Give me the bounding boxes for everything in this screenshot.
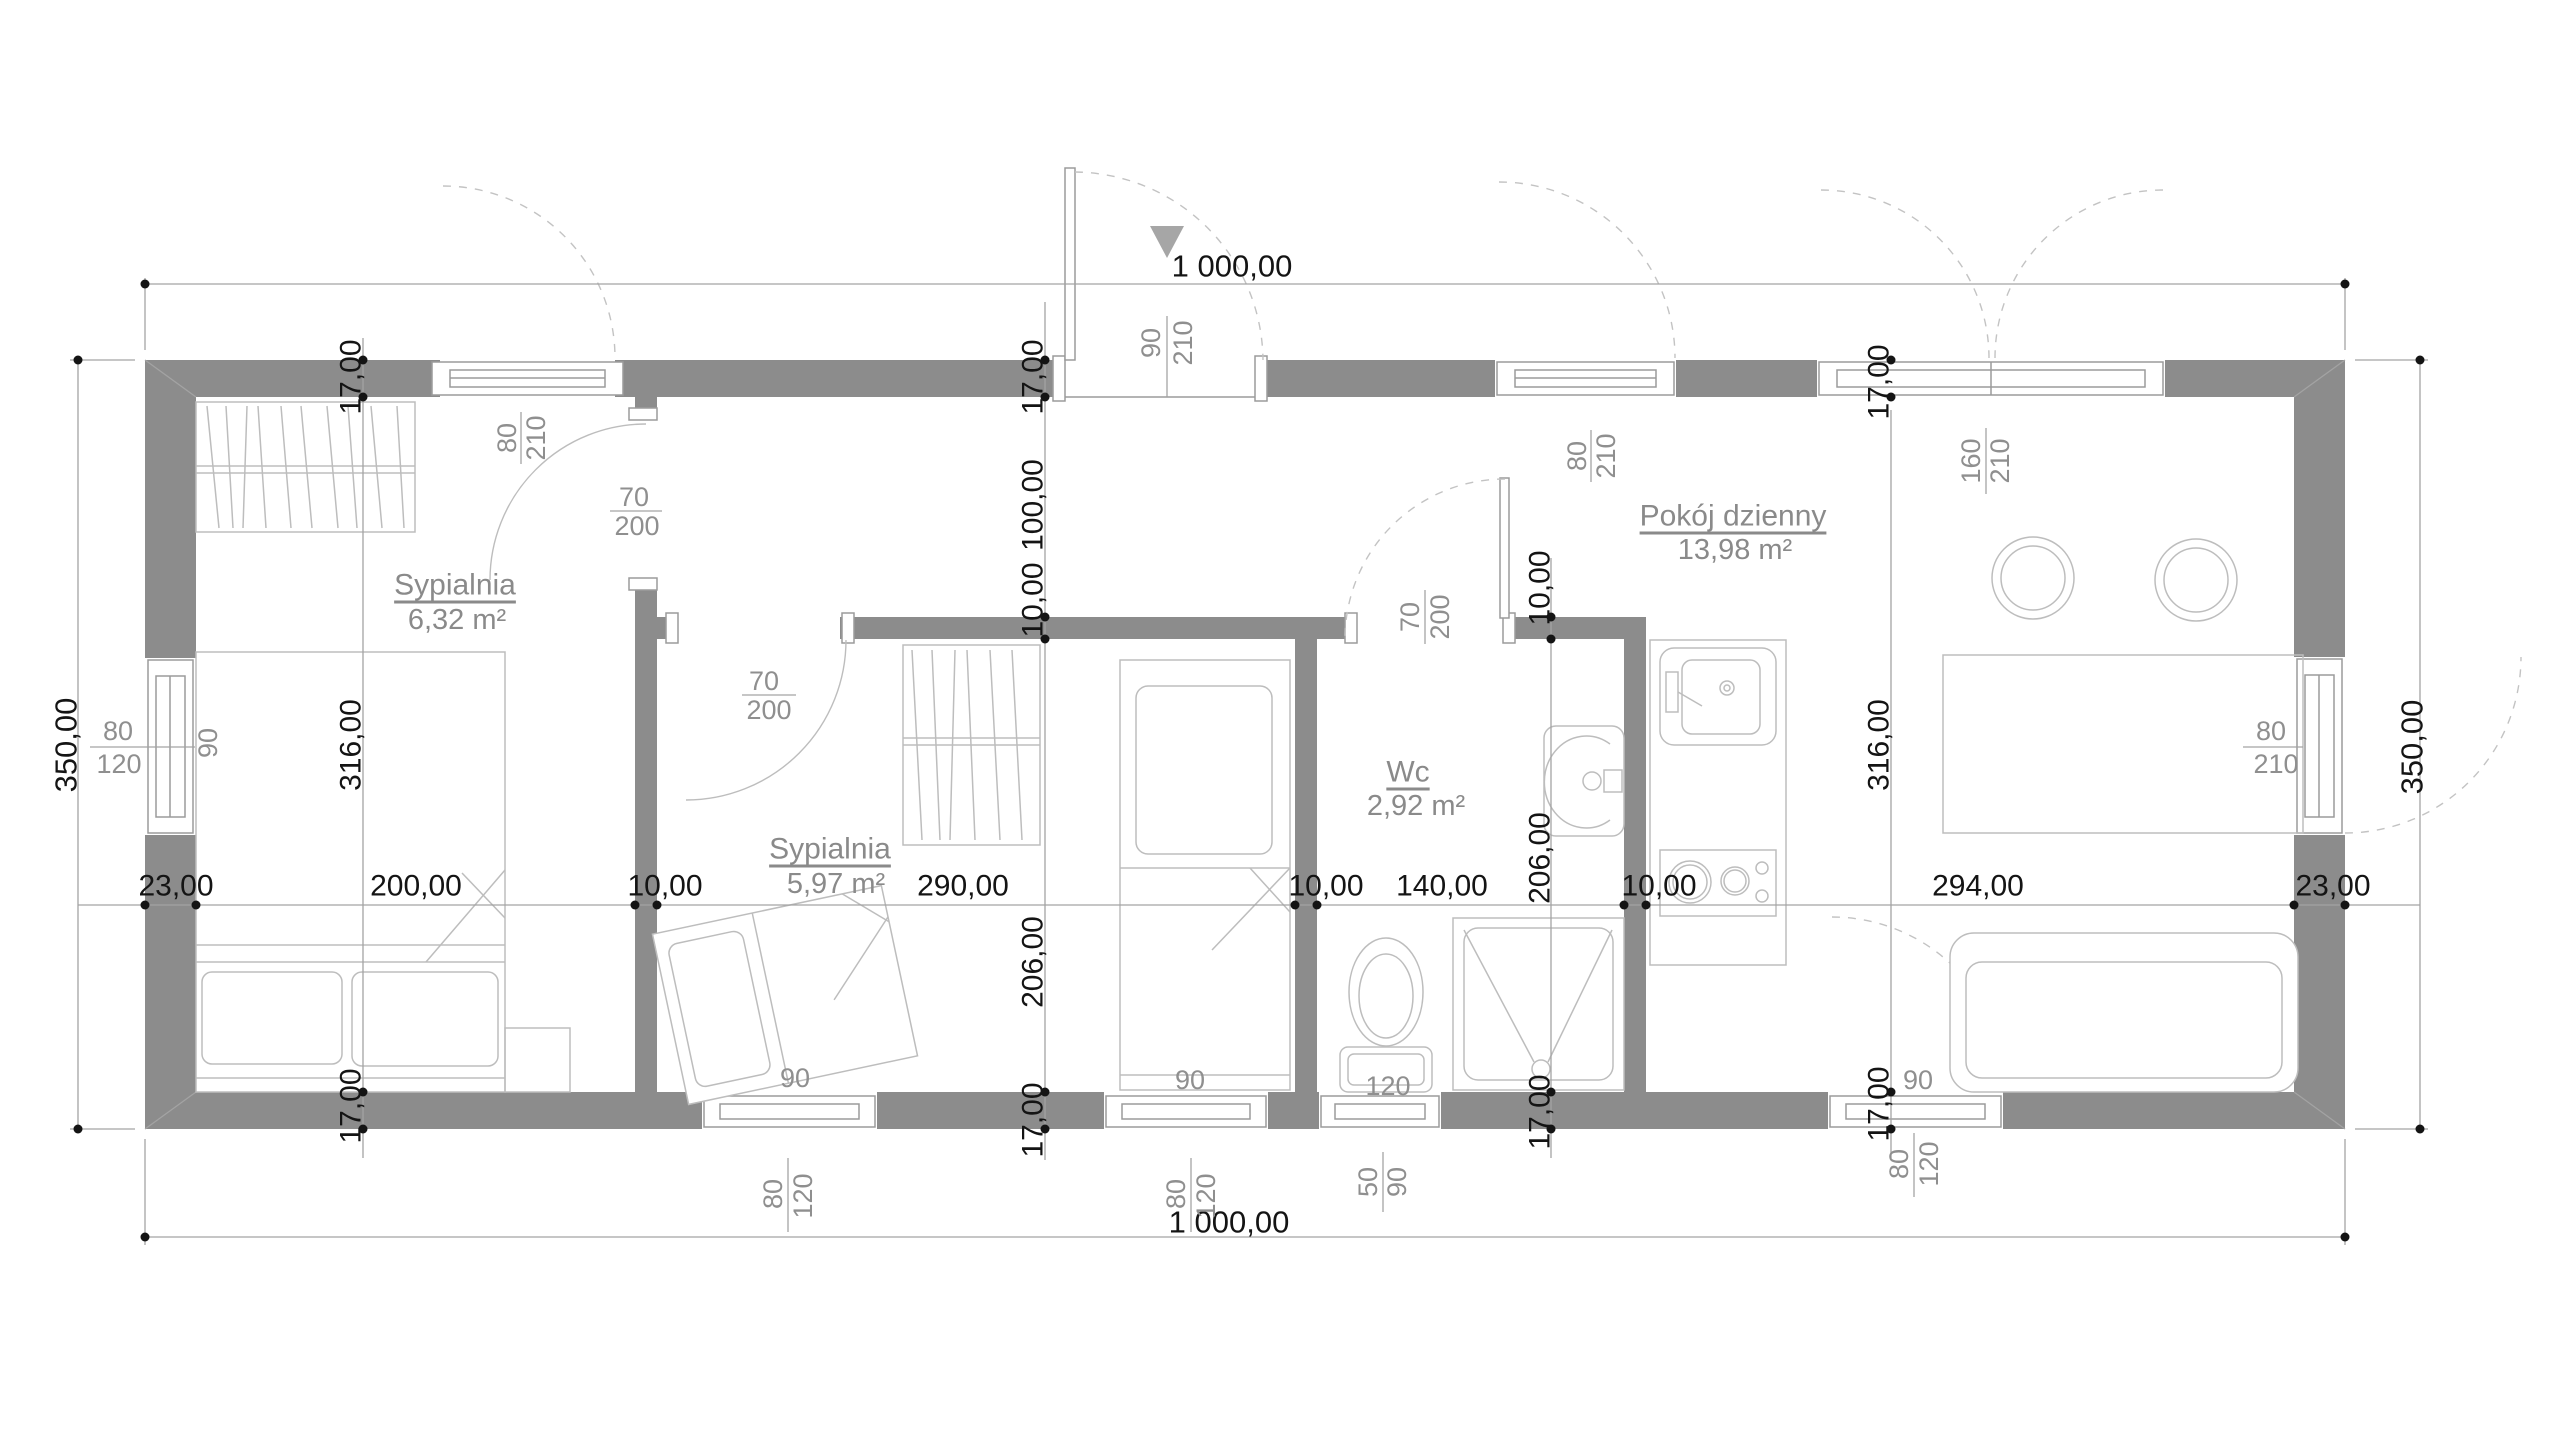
room-bedroom2-name: Sypialnia (769, 833, 891, 866)
label-w1-height: 210 (521, 415, 551, 460)
nightstand-bedroom1 (505, 1028, 570, 1092)
dim-total-right: 350,00 (2395, 700, 2430, 795)
label-w5-height: 120 (788, 1173, 818, 1218)
dim-wc-0: 10,00 (1524, 550, 1557, 625)
entrance-door-leaf (1065, 168, 1075, 360)
dim-wc-2: 17,00 (1524, 1074, 1557, 1149)
window-top-double-swing-left (1821, 190, 1989, 358)
living-chairs (1992, 537, 2237, 621)
dim-total-left: 350,00 (49, 698, 84, 793)
label-w3-width: 80 (1562, 441, 1592, 471)
toilet (1340, 938, 1432, 1092)
label-d1-height: 200 (614, 511, 659, 541)
room-wc-label: Wc 2,92 m² (1367, 756, 1466, 823)
dim-left-1: 316,00 (335, 699, 368, 791)
window-top-living-swing (1499, 182, 1675, 358)
entrance-door-jambs (1053, 356, 1267, 401)
living-table (1943, 655, 2303, 833)
dim-h-4: 10,00 (1288, 870, 1363, 903)
room-living-name: Pokój dzienny (1640, 500, 1827, 533)
label-d2-height: 200 (746, 695, 791, 725)
room-bedroom1-area: 6,32 m² (408, 604, 507, 636)
room-bedroom2-label: Sypialnia 5,97 m² (769, 833, 891, 901)
label-wleft-height: 120 (96, 749, 141, 779)
dim-right-2: 17,00 (1863, 1066, 1896, 1141)
wardrobe-bedroom2 (903, 645, 1040, 845)
label-d2-width: 70 (749, 666, 779, 696)
wardrobe-bedroom1 (196, 402, 415, 532)
dim-total-top: 1 000,00 (1172, 249, 1293, 284)
dim-mid-2: 10,00 (1017, 562, 1050, 637)
dim-mid-4: 17,00 (1017, 1082, 1050, 1157)
dim-mid-0: 17,00 (1017, 339, 1050, 414)
living-sofa (1950, 933, 2298, 1092)
label-w7-height: 90 (1382, 1167, 1412, 1197)
label-dright-width: 80 (2256, 716, 2286, 746)
label-d3-width: 70 (1395, 602, 1425, 632)
window-bottom-bedroom2-a (704, 1096, 875, 1127)
window-top-bedroom1-swing (443, 186, 615, 358)
label-w6-sill: 90 (1175, 1065, 1205, 1095)
room-bedroom1-label: Sypialnia 6,32 m² (394, 569, 516, 637)
furniture (196, 402, 2303, 1104)
label-w8-sill: 90 (1903, 1065, 1933, 1095)
dim-h-6: 10,00 (1621, 870, 1696, 903)
label-d1-width: 70 (619, 482, 649, 512)
label-w8-height: 120 (1914, 1141, 1944, 1186)
label-w5-width: 80 (758, 1179, 788, 1209)
dim-wc-1: 206,00 (1524, 812, 1557, 904)
label-w8-width: 80 (1884, 1149, 1914, 1179)
shower (1453, 918, 1624, 1090)
dim-h-5: 140,00 (1396, 870, 1488, 903)
dim-left-0: 17,00 (335, 339, 368, 414)
window-bottom-living (1830, 1096, 2001, 1127)
room-wc-area: 2,92 m² (1367, 790, 1466, 822)
dim-h-3: 290,00 (917, 870, 1009, 903)
label-w7-sill: 120 (1365, 1071, 1410, 1101)
room-bedroom1-name: Sypialnia (394, 569, 516, 602)
label-w5-sill: 90 (780, 1063, 810, 1093)
label-d3-height: 200 (1425, 594, 1455, 639)
dim-h-7: 294,00 (1932, 870, 2024, 903)
room-labels: Sypialnia 6,32 m² Sypialnia 5,97 m² Wc 2… (394, 500, 1826, 901)
label-wleft-width: 80 (103, 716, 133, 746)
window-bottom-bedroom2-b (1106, 1096, 1266, 1127)
dim-mid-1: 100,00 (1017, 459, 1050, 551)
dim-h-2: 10,00 (627, 870, 702, 903)
dim-h-8: 23,00 (2295, 870, 2370, 903)
window-top-bedroom1 (432, 362, 623, 395)
door-wc-leaf (1500, 478, 1509, 618)
kitchen-counter (1650, 640, 1786, 965)
bed-bedroom2-vertical (1120, 660, 1290, 1090)
dim-right-1: 316,00 (1863, 699, 1896, 791)
room-living-label: Pokój dzienny 13,98 m² (1640, 500, 1827, 567)
dim-mid-3: 206,00 (1017, 916, 1050, 1008)
dim-h-1: 200,00 (370, 870, 462, 903)
window-top-living (1497, 362, 1674, 395)
dim-h-0: 23,00 (138, 870, 213, 903)
label-entrance-height: 210 (1168, 320, 1198, 365)
label-w6-height: 120 (1191, 1173, 1221, 1218)
label-w3-height: 210 (1591, 433, 1621, 478)
floor-plan: 1 000,00 1 000,00 350,00 350,00 23,00 20… (0, 0, 2560, 1441)
door-right-swing (2345, 657, 2521, 833)
label-wleft-sill: 90 (193, 728, 223, 758)
label-entrance-width: 90 (1136, 328, 1166, 358)
window-top-double-swing-right (1995, 190, 2163, 358)
floor-plan-drawing: 1 000,00 1 000,00 350,00 350,00 23,00 20… (0, 0, 2560, 1441)
room-wc-name: Wc (1386, 756, 1429, 789)
dim-left-2: 17,00 (335, 1068, 368, 1143)
label-w4-height: 210 (1985, 438, 2015, 483)
door-bedroom2-jambs (666, 613, 854, 643)
label-w1-width: 80 (492, 423, 522, 453)
label-w7-width: 50 (1353, 1167, 1383, 1197)
dim-right-0: 17,00 (1863, 344, 1896, 419)
label-w4-width: 160 (1956, 438, 1986, 483)
room-living-area: 13,98 m² (1678, 534, 1793, 566)
room-bedroom2-area: 5,97 m² (787, 868, 886, 900)
label-w6-width: 80 (1161, 1179, 1191, 1209)
label-dright-height: 210 (2253, 749, 2298, 779)
